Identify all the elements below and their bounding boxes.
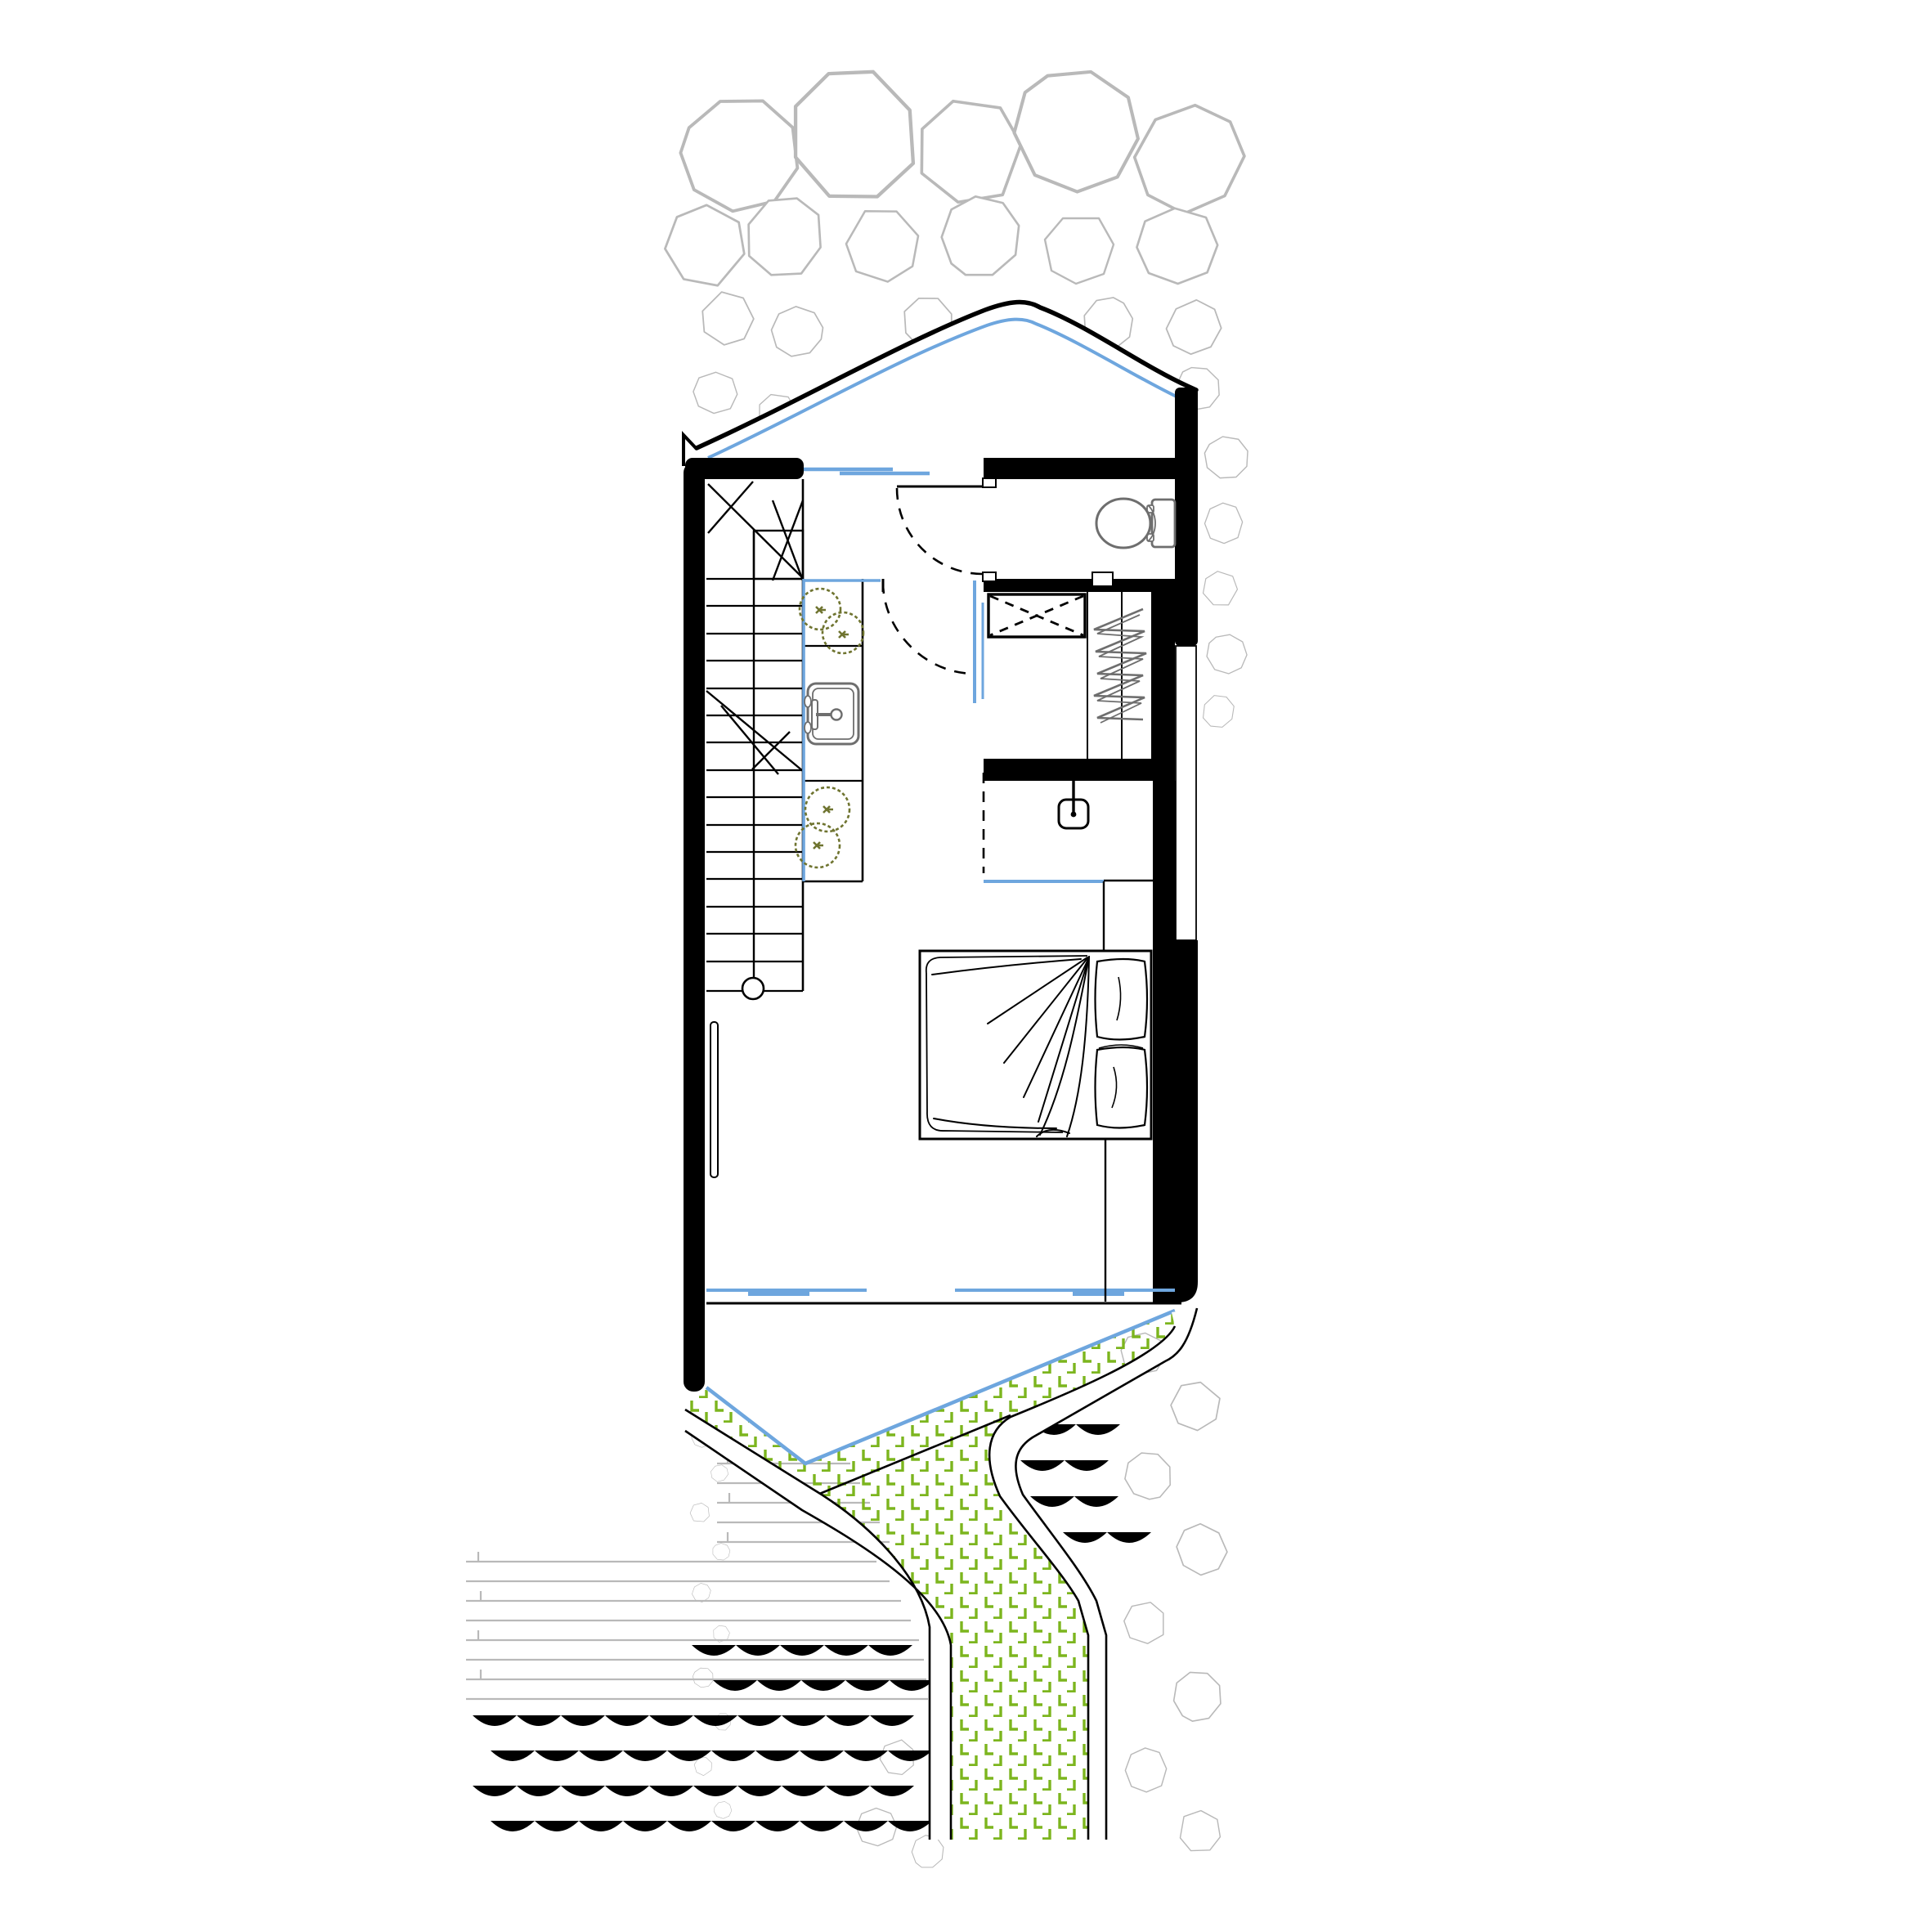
wall-left — [684, 463, 705, 1392]
wall-top-right — [984, 458, 1175, 479]
radiator-shelf — [710, 1022, 718, 1177]
wall-top-left — [685, 458, 804, 479]
floor-plan-sheet — [0, 0, 1932, 1932]
wall-closet-right — [1151, 590, 1175, 759]
rock-field-bottom-right — [1116, 1327, 1235, 1855]
duct-box — [1092, 572, 1113, 586]
window-glass-column — [1176, 646, 1196, 940]
wall-desk-top — [984, 759, 1175, 781]
floor-plan-drawing — [0, 0, 1932, 1932]
wall-right-mid — [1153, 781, 1176, 940]
toilet — [1096, 499, 1175, 548]
building — [684, 300, 1198, 1393]
wall-bathroom-bottom — [984, 579, 1175, 592]
stair-newel-circle — [742, 978, 764, 999]
wall-right-upper — [1175, 388, 1198, 646]
kitchen-sink — [805, 684, 858, 744]
